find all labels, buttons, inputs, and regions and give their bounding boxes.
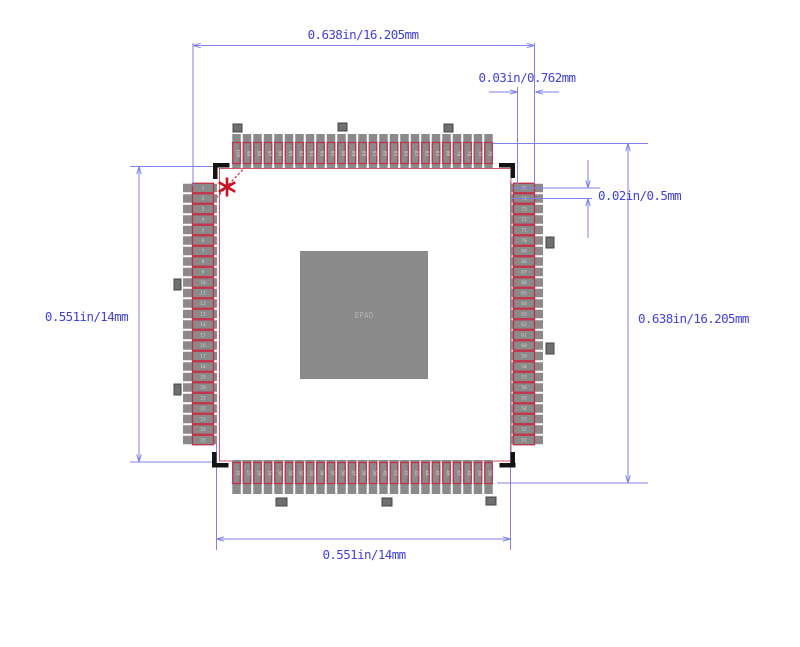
pin-number: 23 <box>200 417 206 423</box>
via-marker <box>546 343 554 354</box>
pad-pin-22: 22 <box>183 404 217 414</box>
pad-pin-89: 89 <box>348 134 357 168</box>
pin-number: 61 <box>521 333 527 339</box>
pin-number: 26 <box>235 470 241 476</box>
via-marker <box>276 498 287 506</box>
pad-pin-55: 55 <box>510 393 543 403</box>
pad-pin-99: 99 <box>243 134 252 168</box>
pad-pin-61: 61 <box>510 330 543 340</box>
pin-number: 92 <box>319 151 325 157</box>
pin-number: 37 <box>350 470 356 476</box>
pad-pin-23: 23 <box>183 414 217 424</box>
pin-number: 9 <box>202 270 205 276</box>
pad-pin-27: 27 <box>243 460 252 494</box>
pin-number: 71 <box>521 228 527 234</box>
pin-number: 46 <box>445 470 451 476</box>
pin-number: 97 <box>266 151 272 157</box>
dim-pitch-label: 0.02in/0.5mm <box>598 188 681 203</box>
pad-pin-60: 60 <box>510 341 543 351</box>
pad-pin-16: 16 <box>183 341 217 351</box>
pad-pin-24: 24 <box>183 425 217 435</box>
pad-pin-2: 2 <box>183 194 217 204</box>
pad-pin-88: 88 <box>358 134 367 168</box>
pad-pin-19: 19 <box>183 372 217 382</box>
pad-pin-98: 98 <box>253 134 262 168</box>
exposed-pad: EPAD <box>300 251 428 379</box>
pad-pin-97: 97 <box>264 134 273 168</box>
pin-number: 99 <box>245 151 251 157</box>
pad-pin-93: 93 <box>306 134 315 168</box>
pad-pin-53: 53 <box>510 414 543 424</box>
corner-bracket-bottom-right <box>500 452 516 468</box>
pin-number: 15 <box>200 333 206 339</box>
pin-number: 49 <box>476 470 482 476</box>
pin-number: 34 <box>319 470 325 476</box>
pin-number: 48 <box>466 470 472 476</box>
pad-pin-37: 37 <box>348 460 357 494</box>
pad-pin-6: 6 <box>183 236 217 246</box>
pad-pin-26: 26 <box>232 460 241 494</box>
pin-number: 5 <box>202 228 205 234</box>
pad-pin-43: 43 <box>411 460 420 494</box>
dim-pad-length <box>489 87 559 185</box>
pin-number: 85 <box>392 151 398 157</box>
pad-pin-47: 47 <box>453 460 462 494</box>
pad-pin-82: 82 <box>421 134 430 168</box>
pin-number: 21 <box>200 396 206 402</box>
pin-number: 89 <box>350 151 356 157</box>
pad-pin-30: 30 <box>274 460 283 494</box>
pin-number: 35 <box>329 470 335 476</box>
pin-number: 43 <box>413 470 419 476</box>
pin-number: 47 <box>455 470 461 476</box>
pin-number: 77 <box>476 151 482 157</box>
pin-number: 78 <box>466 151 472 157</box>
pin-number: 7 <box>202 249 205 255</box>
pad-pin-81: 81 <box>432 134 441 168</box>
pad-pin-66: 66 <box>510 278 543 288</box>
pad-pin-80: 80 <box>442 134 451 168</box>
pad-pin-12: 12 <box>183 299 217 309</box>
pin-number: 65 <box>521 291 527 297</box>
pad-pin-39: 39 <box>369 460 378 494</box>
pad-pin-14: 14 <box>183 320 217 330</box>
pad-pin-31: 31 <box>285 460 294 494</box>
pin-number: 93 <box>308 151 314 157</box>
pin-number: 58 <box>521 364 527 370</box>
pin-number: 100 <box>235 149 241 157</box>
pad-pin-96: 96 <box>274 134 283 168</box>
pad-pin-91: 91 <box>327 134 336 168</box>
pad-pin-45: 45 <box>432 460 441 494</box>
pad-pin-13: 13 <box>183 309 217 319</box>
pad-pin-17: 17 <box>183 351 217 361</box>
pin-number: 59 <box>521 354 527 360</box>
via-marker <box>174 279 181 290</box>
pad-pin-7: 7 <box>183 246 217 256</box>
footprint-svg: EPAD 17510026274992737398284729729571963… <box>0 0 800 647</box>
pin-number: 1 <box>202 186 205 192</box>
pin-number: 13 <box>200 312 206 318</box>
pad-pin-20: 20 <box>183 383 217 393</box>
pad-pin-79: 79 <box>453 134 462 168</box>
pin-number: 18 <box>200 364 206 370</box>
pin-number: 32 <box>298 470 304 476</box>
pin-number: 51 <box>521 438 527 444</box>
pad-pin-11: 11 <box>183 288 217 298</box>
pad-pin-73: 73 <box>510 204 543 214</box>
pin-number: 50 <box>487 470 493 476</box>
via-marker <box>444 124 453 132</box>
pin-number: 56 <box>521 385 527 391</box>
pad-pin-63: 63 <box>510 309 543 319</box>
pad-pin-71: 71 <box>510 225 543 235</box>
pad-pin-59: 59 <box>510 351 543 361</box>
pad-pin-18: 18 <box>183 362 217 372</box>
pin-number: 44 <box>424 470 430 476</box>
pad-pin-38: 38 <box>358 460 367 494</box>
pad-pin-21: 21 <box>183 393 217 403</box>
pin-number: 95 <box>287 151 293 157</box>
pad-pin-1: 1 <box>183 183 217 193</box>
pad-pin-56: 56 <box>510 383 543 393</box>
corner-bracket-top-right <box>499 163 515 178</box>
pin-number: 16 <box>200 343 206 349</box>
pad-pin-58: 58 <box>510 362 543 372</box>
pin-number: 30 <box>277 470 283 476</box>
pin-number: 91 <box>329 151 335 157</box>
pad-pin-83: 83 <box>411 134 420 168</box>
via-marker <box>486 497 496 505</box>
pin-number: 83 <box>413 151 419 157</box>
pin-number: 6 <box>202 238 205 244</box>
pad-pin-70: 70 <box>510 236 543 246</box>
pin-number: 79 <box>455 151 461 157</box>
pad-pin-28: 28 <box>253 460 262 494</box>
pad-pin-84: 84 <box>400 134 409 168</box>
pin-number: 38 <box>361 470 367 476</box>
pad-pin-41: 41 <box>390 460 399 494</box>
pin-number: 20 <box>200 385 206 391</box>
pin-number: 87 <box>371 151 377 157</box>
pad-pin-54: 54 <box>510 404 543 414</box>
pad-pin-67: 67 <box>510 267 543 277</box>
pin-number: 17 <box>200 354 206 360</box>
corner-bracket-top-left <box>213 163 230 179</box>
pad-pin-68: 68 <box>510 257 543 267</box>
via-marker <box>546 237 554 248</box>
pin-number: 14 <box>200 322 206 328</box>
dim-bottom-label: 0.551in/14mm <box>322 547 405 562</box>
pad-pin-87: 87 <box>369 134 378 168</box>
dim-pad-length-label: 0.03in/0.762mm <box>479 70 576 85</box>
via-marker <box>382 498 392 506</box>
dim-left-label: 0.551in/14mm <box>45 309 128 324</box>
via-marker <box>233 124 242 132</box>
pin-number: 98 <box>256 151 262 157</box>
pad-pin-65: 65 <box>510 288 543 298</box>
pin-number: 42 <box>403 470 409 476</box>
pin-number: 68 <box>521 259 527 265</box>
dim-right-label: 0.638in/16.205mm <box>638 311 749 326</box>
pin-number: 86 <box>382 151 388 157</box>
pad-pin-94: 94 <box>295 134 304 168</box>
pad-pin-48: 48 <box>463 460 472 494</box>
pad-pin-40: 40 <box>379 460 388 494</box>
pad-pin-50: 50 <box>484 460 493 494</box>
pad-pin-57: 57 <box>510 372 543 382</box>
pad-pin-62: 62 <box>510 320 543 330</box>
pad-pin-76: 76 <box>484 134 493 168</box>
pad-pin-34: 34 <box>316 460 325 494</box>
pin-number: 27 <box>245 470 251 476</box>
pad-pin-51: 51 <box>510 435 543 445</box>
pad-pin-77: 77 <box>474 134 483 168</box>
pad-pin-52: 52 <box>510 425 543 435</box>
pad-pin-72: 72 <box>510 215 543 225</box>
pad-pin-86: 86 <box>379 134 388 168</box>
pin-number: 63 <box>521 312 527 318</box>
pin-number: 52 <box>521 427 527 433</box>
pin-number: 69 <box>521 249 527 255</box>
pin-number: 82 <box>424 151 430 157</box>
pin-number: 66 <box>521 280 527 286</box>
pin-number: 36 <box>340 470 346 476</box>
pin-number: 84 <box>403 151 409 157</box>
pad-pin-35: 35 <box>327 460 336 494</box>
pad-pin-8: 8 <box>183 257 217 267</box>
pad-pin-9: 9 <box>183 267 217 277</box>
pin-number: 41 <box>392 470 398 476</box>
pin-number: 62 <box>521 322 527 328</box>
pin-number: 19 <box>200 375 206 381</box>
pad-pin-44: 44 <box>421 460 430 494</box>
pin-number: 57 <box>521 375 527 381</box>
pin-number: 2 <box>202 196 205 202</box>
pad-pin-42: 42 <box>400 460 409 494</box>
pin-number: 67 <box>521 270 527 276</box>
pin-number: 54 <box>521 406 527 412</box>
pin-number: 28 <box>256 470 262 476</box>
pad-pin-49: 49 <box>474 460 483 494</box>
pin-number: 33 <box>308 470 314 476</box>
pad-pin-10: 10 <box>183 278 217 288</box>
pin-number: 29 <box>266 470 272 476</box>
pin-number: 40 <box>382 470 388 476</box>
pad-pin-46: 46 <box>442 460 451 494</box>
pin-number: 24 <box>200 427 206 433</box>
pin-number: 39 <box>371 470 377 476</box>
pin-number: 74 <box>521 196 527 202</box>
pad-pin-25: 25 <box>183 435 217 445</box>
pad-pin-78: 78 <box>463 134 472 168</box>
dim-top-label: 0.638in/16.205mm <box>308 27 419 42</box>
via-marker <box>338 123 347 131</box>
pin-number: 31 <box>287 470 293 476</box>
pad-pin-3: 3 <box>183 204 217 214</box>
pin-number: 76 <box>487 151 493 157</box>
pin-number: 22 <box>200 406 206 412</box>
pad-pin-64: 64 <box>510 299 543 309</box>
pad-pin-69: 69 <box>510 246 543 256</box>
pad-pin-92: 92 <box>316 134 325 168</box>
pin-number: 45 <box>434 470 440 476</box>
pin-number: 3 <box>202 207 205 213</box>
pad-pin-29: 29 <box>264 460 273 494</box>
pad-pin-90: 90 <box>337 134 346 168</box>
pad-pin-5: 5 <box>183 225 217 235</box>
pin-number: 60 <box>521 343 527 349</box>
pin-number: 64 <box>521 301 527 307</box>
pin-number: 70 <box>521 238 527 244</box>
pin-number: 53 <box>521 417 527 423</box>
dim-bottom <box>217 537 511 541</box>
pad-pin-33: 33 <box>306 460 315 494</box>
pin-number: 88 <box>361 151 367 157</box>
pin-number: 72 <box>521 217 527 223</box>
epad-label: EPAD <box>355 311 374 320</box>
pin-number: 75 <box>521 186 527 192</box>
pin-number: 80 <box>445 151 451 157</box>
pin-number: 10 <box>200 280 206 286</box>
pad-pin-4: 4 <box>183 215 217 225</box>
pin-number: 12 <box>200 301 206 307</box>
pad-pin-100: 100 <box>232 134 241 168</box>
pin-number: 25 <box>200 438 206 444</box>
pin-number: 4 <box>202 217 205 223</box>
pad-pin-15: 15 <box>183 330 217 340</box>
pin-number: 81 <box>434 151 440 157</box>
pin-number: 96 <box>277 151 283 157</box>
pin-number: 11 <box>200 291 206 297</box>
pad-pin-95: 95 <box>285 134 294 168</box>
pin-number: 73 <box>521 207 527 213</box>
pad-pin-36: 36 <box>337 460 346 494</box>
pin-number: 90 <box>340 151 346 157</box>
via-marker <box>174 384 181 395</box>
footprint-drawing-canvas: EPAD 17510026274992737398284729729571963… <box>0 0 800 647</box>
pin-number: 8 <box>202 259 205 265</box>
pin-number: 94 <box>298 151 304 157</box>
pin-number: 55 <box>521 396 527 402</box>
pad-pin-85: 85 <box>390 134 399 168</box>
pad-pin-32: 32 <box>295 460 304 494</box>
corner-bracket-bottom-left <box>212 452 229 468</box>
